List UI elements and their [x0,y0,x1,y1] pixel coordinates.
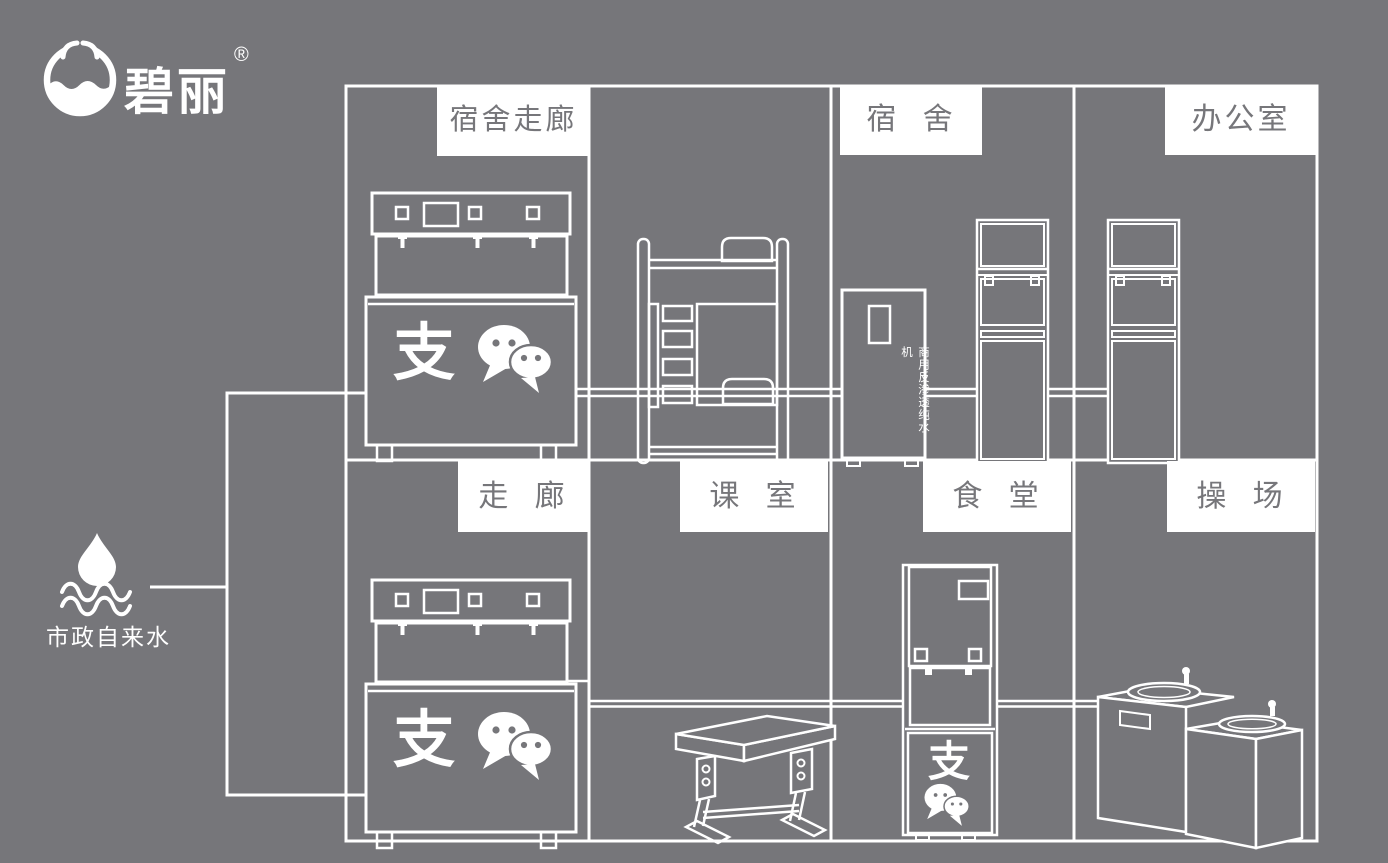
registered-mark: ® [234,44,249,67]
water-drop-icon [78,533,116,586]
pillow [722,238,772,261]
room-label-playground: 操 场 [1167,461,1315,532]
tap-icon [1184,674,1189,684]
brand-logo-icon [47,42,113,113]
pillow [723,379,773,404]
room-label-dorm-corridor: 宿舍走廊 [437,85,590,156]
canteen-dispenser: 支 [903,565,997,840]
drinking-fountain [1098,667,1302,848]
brand-logo-text: 碧丽 [124,52,230,124]
room-label-canteen: 食 堂 [923,461,1071,532]
bunk-bed [638,238,788,463]
room-label-classroom: 课 室 [680,461,828,532]
tap-icon [925,668,932,675]
alipay-icon: 支 [928,738,970,785]
diagram-canvas: 支 [0,0,1388,863]
water-source-label: 市政自来水 [46,618,171,652]
room-label-dorm: 宿 舍 [840,85,982,155]
room-label-corridor: 走 廊 [458,461,588,532]
feeder-pipes [150,393,367,795]
tap-icon [965,668,972,675]
tap-icon [1270,707,1275,716]
school-desk [676,716,835,843]
purifier-label: 商用反渗透纯水机 [897,346,931,441]
room-label-office: 办公室 [1165,85,1317,155]
water-source-icon [62,533,130,614]
